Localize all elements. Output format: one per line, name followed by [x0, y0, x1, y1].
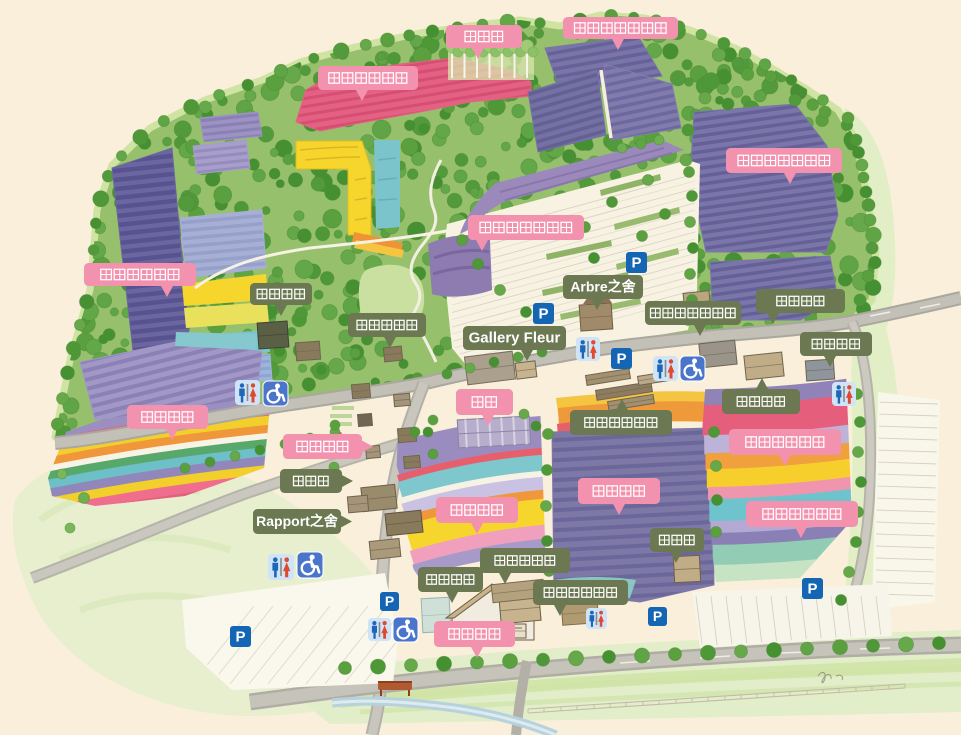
svg-text:P: P [385, 593, 394, 609]
svg-text:P: P [235, 629, 245, 646]
svg-text:Arbre之舍: Arbre之舍 [570, 278, 636, 294]
svg-text:P: P [653, 608, 662, 624]
svg-text:P: P [616, 351, 626, 368]
svg-text:Gallery Fleur: Gallery Fleur [469, 330, 561, 347]
svg-text:P: P [538, 306, 548, 323]
svg-text:Rapport之舍: Rapport之舍 [256, 513, 339, 529]
svg-text:P: P [807, 581, 817, 598]
svg-text:P: P [631, 255, 641, 272]
